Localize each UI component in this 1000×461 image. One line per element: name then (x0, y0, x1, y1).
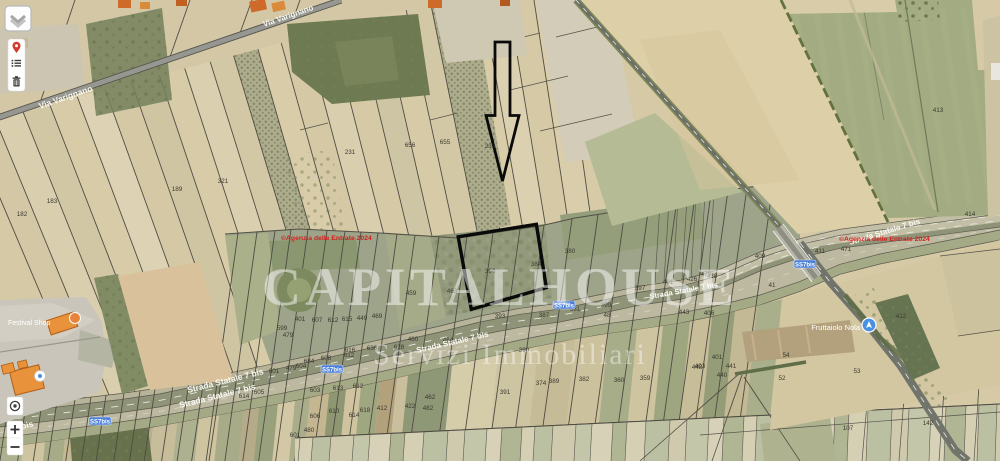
svg-text:601: 601 (290, 432, 301, 439)
svg-text:41: 41 (768, 282, 776, 289)
svg-text:440: 440 (717, 372, 728, 379)
svg-text:401: 401 (295, 316, 306, 323)
svg-text:54: 54 (782, 352, 790, 359)
svg-text:615: 615 (342, 316, 353, 323)
svg-text:608: 608 (321, 355, 332, 362)
svg-text:321: 321 (218, 178, 229, 185)
svg-text:441: 441 (726, 363, 737, 370)
svg-text:53: 53 (853, 368, 861, 375)
svg-text:359: 359 (640, 375, 651, 382)
svg-text:606: 606 (310, 413, 321, 420)
svg-text:462: 462 (425, 394, 436, 401)
svg-text:360: 360 (614, 377, 625, 384)
svg-text:409: 409 (755, 253, 766, 260)
svg-text:391: 391 (500, 389, 511, 396)
svg-text:482: 482 (423, 405, 434, 412)
svg-text:614: 614 (349, 412, 360, 419)
svg-text:Festival Shop: Festival Shop (8, 320, 51, 327)
svg-text:Servizi Immobiliari: Servizi Immobiliari (373, 338, 647, 371)
svg-text:183: 183 (47, 198, 58, 205)
svg-text:374: 374 (536, 380, 547, 387)
svg-text:480: 480 (304, 427, 315, 434)
svg-text:401: 401 (712, 354, 723, 361)
svg-text:655: 655 (440, 139, 451, 146)
svg-text:479: 479 (286, 365, 297, 372)
svg-text:231: 231 (345, 149, 356, 156)
svg-text:612: 612 (328, 317, 339, 324)
svg-text:412: 412 (377, 405, 388, 412)
svg-text:656: 656 (405, 142, 416, 149)
svg-text:604: 604 (296, 363, 307, 370)
svg-text:613: 613 (333, 385, 344, 392)
svg-text:233: 233 (485, 143, 496, 150)
svg-text:422: 422 (405, 403, 416, 410)
svg-text:182: 182 (17, 211, 28, 218)
svg-text:389: 389 (549, 378, 560, 385)
svg-text:612: 612 (344, 352, 355, 359)
svg-text:601: 601 (269, 368, 280, 375)
svg-text:142: 142 (923, 420, 934, 427)
svg-text:612: 612 (353, 383, 364, 390)
svg-text:©Agenzia delle Entrate 2024: ©Agenzia delle Entrate 2024 (281, 234, 372, 242)
svg-text:403: 403 (695, 363, 706, 370)
svg-text:382: 382 (579, 376, 590, 383)
svg-text:CAPITALHOUSE: CAPITALHOUSE (262, 257, 738, 317)
svg-text:SS7bis: SS7bis (90, 419, 111, 425)
svg-text:618: 618 (360, 407, 371, 414)
svg-text:412: 412 (896, 313, 907, 320)
svg-text:599: 599 (277, 325, 288, 332)
svg-text:©Agenzia delle Entrate 2024: ©Agenzia delle Entrate 2024 (839, 235, 930, 243)
svg-text:411: 411 (815, 248, 826, 255)
svg-text:SS7bis: SS7bis (322, 367, 343, 373)
svg-text:52: 52 (778, 375, 786, 382)
svg-text:SS7bis: SS7bis (795, 262, 816, 268)
svg-text:107: 107 (843, 425, 854, 432)
svg-text:607: 607 (312, 317, 323, 324)
svg-text:413: 413 (933, 107, 944, 114)
svg-text:414: 414 (965, 211, 976, 218)
svg-text:603: 603 (310, 387, 321, 394)
svg-text:Fruttaiolo Nola: Fruttaiolo Nola (811, 323, 861, 332)
svg-text:479: 479 (283, 332, 294, 339)
svg-text:610: 610 (329, 408, 340, 415)
svg-text:380: 380 (565, 248, 576, 255)
svg-text:189: 189 (172, 186, 183, 193)
